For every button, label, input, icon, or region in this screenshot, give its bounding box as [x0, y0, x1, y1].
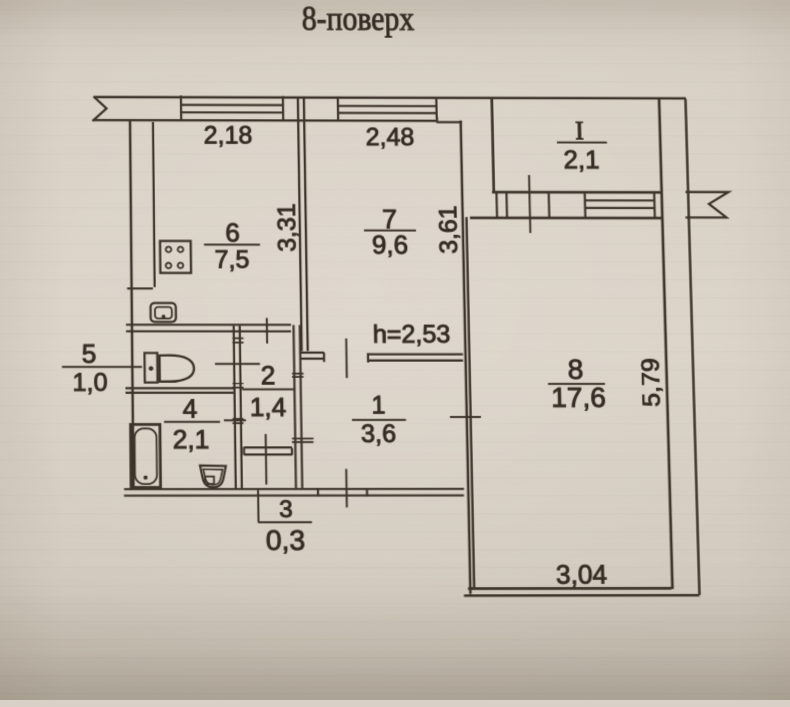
svg-text:2,48: 2,48: [365, 124, 414, 151]
svg-text:1: 1: [371, 392, 386, 419]
svg-text:6: 6: [225, 219, 240, 247]
svg-text:1,4: 1,4: [250, 393, 287, 421]
svg-text:2,1: 2,1: [173, 426, 210, 455]
svg-text:5,79: 5,79: [637, 358, 666, 407]
svg-text:3,31: 3,31: [273, 203, 301, 251]
svg-text:0,3: 0,3: [266, 524, 306, 556]
svg-text:3,61: 3,61: [435, 205, 463, 253]
svg-text:9,6: 9,6: [372, 232, 409, 260]
svg-text:3: 3: [279, 496, 293, 524]
svg-text:1,0: 1,0: [72, 370, 107, 397]
svg-text:I: I: [575, 116, 584, 145]
svg-text:4: 4: [183, 395, 198, 423]
svg-text:8-поверх: 8-поверх: [301, 2, 414, 38]
svg-text:h=2,53: h=2,53: [373, 321, 451, 348]
svg-text:5: 5: [82, 341, 97, 369]
svg-text:3,6: 3,6: [361, 421, 397, 448]
svg-text:7,5: 7,5: [214, 247, 249, 274]
svg-text:2,18: 2,18: [204, 122, 253, 149]
svg-text:3,04: 3,04: [556, 561, 608, 590]
svg-text:2: 2: [261, 362, 276, 390]
svg-text:17,6: 17,6: [551, 382, 606, 413]
svg-text:8: 8: [567, 354, 583, 385]
svg-text:2,1: 2,1: [563, 147, 600, 175]
